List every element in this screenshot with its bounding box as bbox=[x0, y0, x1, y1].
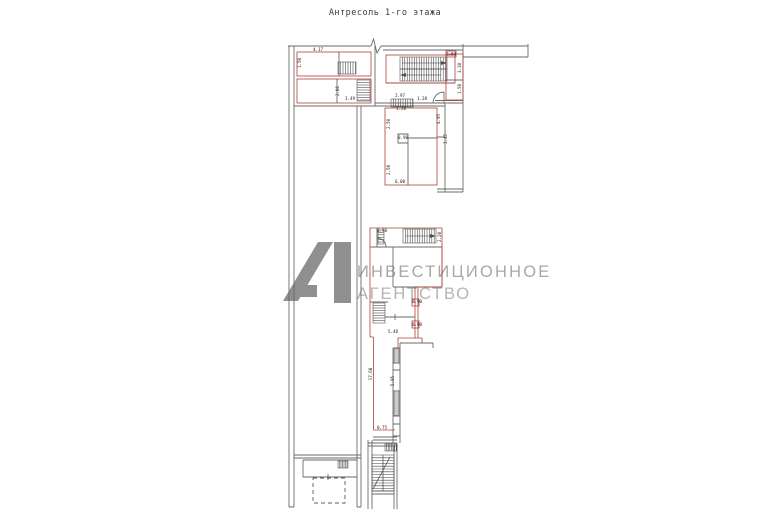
dimension-label: 4.95 bbox=[436, 113, 441, 124]
dimension-label: 2.50 bbox=[386, 164, 391, 175]
dimension-label: 3.10 bbox=[457, 62, 462, 73]
dimension-label: 5.48 bbox=[388, 329, 399, 334]
dimension-label: 0.90 bbox=[377, 228, 388, 233]
dimension-label: 0.90 bbox=[412, 322, 423, 327]
door-arc bbox=[433, 92, 444, 103]
break-symbol bbox=[371, 39, 381, 53]
watermark-line1: ИНВЕСТИЦИОННОЕ bbox=[357, 263, 551, 281]
dimension-label: 6.00 bbox=[395, 179, 406, 184]
dashed-zone bbox=[313, 478, 345, 503]
dimension-label: 5.95 bbox=[390, 375, 395, 386]
dimension-label: 4.17 bbox=[313, 47, 324, 52]
dimension-label: 0.90 bbox=[398, 135, 409, 140]
dimension-label: 0.75 bbox=[377, 425, 388, 430]
stair-arrow-icon bbox=[430, 234, 436, 238]
dimension-label: 17.68 bbox=[368, 367, 373, 380]
dimension-label: 2.20 bbox=[437, 231, 442, 242]
dimension-label: 2.50 bbox=[386, 118, 391, 129]
dimension-label: 2.84 bbox=[446, 52, 457, 57]
dimension-label: 2.86 bbox=[335, 85, 340, 96]
dimension-label: 1.45 bbox=[443, 133, 448, 144]
dimension-label: 1.20 bbox=[396, 106, 407, 111]
dimension-label: 1.50 bbox=[297, 57, 302, 68]
watermark: ИНВЕСТИЦИОННОЕ АГЕНТСТВО bbox=[283, 242, 551, 303]
stair-arrow-icon bbox=[400, 73, 406, 77]
agency-logo-icon bbox=[283, 242, 351, 303]
stair-steps bbox=[357, 80, 370, 101]
floorplan-canvas: Антресоль 1-го этажа ИНВЕСТИЦИОННОЕ АГЕН… bbox=[0, 0, 770, 510]
dimension-label: 2.97 bbox=[395, 93, 406, 98]
dimension-label: 1.28 bbox=[417, 96, 428, 101]
floorplan-drawing: ИНВЕСТИЦИОННОЕ АГЕНТСТВО bbox=[0, 0, 770, 510]
dimension-label: 0.90 bbox=[412, 299, 423, 304]
dimension-label: 3.49 bbox=[345, 96, 356, 101]
dimension-label: 1.50 bbox=[457, 83, 462, 94]
